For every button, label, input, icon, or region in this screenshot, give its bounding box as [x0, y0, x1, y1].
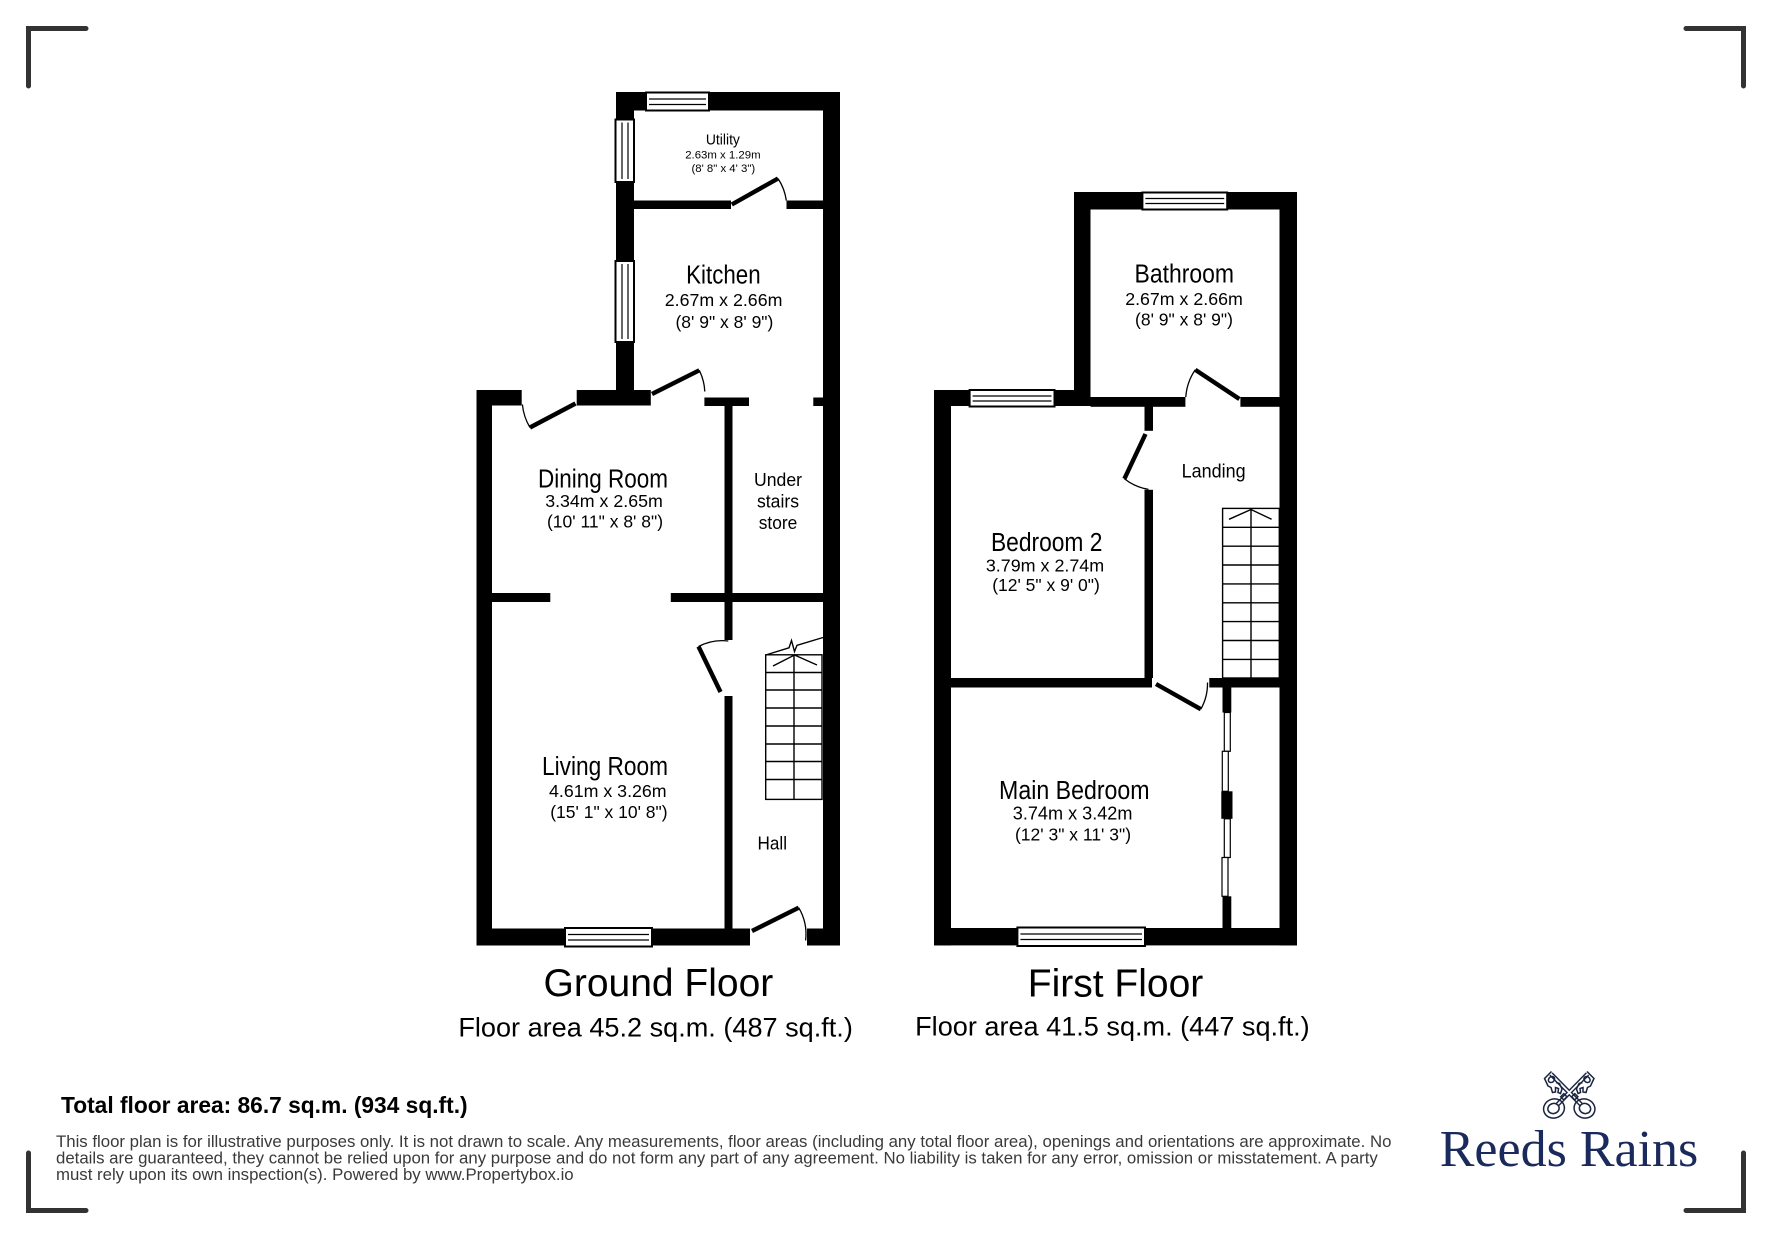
svg-text:Utility: Utility	[706, 132, 740, 149]
svg-text:store: store	[759, 512, 798, 533]
svg-text:(12' 3" x 11' 3"): (12' 3" x 11' 3")	[1015, 825, 1131, 845]
svg-text:stairs: stairs	[757, 491, 799, 512]
svg-text:Floor area 41.5 sq.m. (447 sq.: Floor area 41.5 sq.m. (447 sq.ft.)	[915, 1010, 1310, 1041]
svg-text:(10' 11" x 8' 8"): (10' 11" x 8' 8")	[547, 512, 663, 532]
svg-text:Living Room: Living Room	[542, 753, 668, 781]
svg-text:(8' 8" x 4' 3"): (8' 8" x 4' 3")	[691, 163, 755, 175]
svg-text:First Floor: First Floor	[1028, 962, 1204, 1005]
svg-text:2.63m x 1.29m: 2.63m x 1.29m	[685, 150, 760, 162]
svg-text:Dining Room: Dining Room	[538, 466, 668, 494]
svg-text:2.67m x 2.66m: 2.67m x 2.66m	[1125, 289, 1243, 309]
svg-text:Landing: Landing	[1182, 460, 1246, 482]
svg-text:(12' 5" x 9' 0"): (12' 5" x 9' 0")	[992, 575, 1100, 595]
svg-text:(8' 9" x 8' 9"): (8' 9" x 8' 9")	[1135, 310, 1233, 330]
svg-text:Main Bedroom: Main Bedroom	[999, 777, 1150, 805]
svg-text:(8' 9" x 8' 9"): (8' 9" x 8' 9")	[675, 312, 773, 332]
svg-text:3.34m x 2.65m: 3.34m x 2.65m	[545, 491, 663, 511]
svg-text:Hall: Hall	[758, 833, 788, 854]
svg-text:4.61m x 3.26m: 4.61m x 3.26m	[549, 781, 667, 801]
svg-text:(15' 1" x 10' 8"): (15' 1" x 10' 8")	[550, 802, 667, 822]
svg-text:3.74m x 3.42m: 3.74m x 3.42m	[1013, 804, 1133, 824]
svg-text:Kitchen: Kitchen	[686, 262, 761, 290]
svg-text:must rely upon its own inspect: must rely upon its own inspection(s). Po…	[56, 1165, 574, 1184]
svg-text:Bathroom: Bathroom	[1135, 261, 1235, 289]
svg-text:Total floor area: 86.7 sq.m. (: Total floor area: 86.7 sq.m. (934 sq.ft.…	[61, 1092, 468, 1118]
svg-text:2.67m x 2.66m: 2.67m x 2.66m	[665, 290, 783, 310]
svg-text:Reeds Rains: Reeds Rains	[1440, 1121, 1699, 1178]
svg-text:3.79m x 2.74m: 3.79m x 2.74m	[986, 556, 1104, 576]
svg-text:Ground Floor: Ground Floor	[544, 962, 774, 1005]
svg-text:Under: Under	[754, 469, 802, 490]
svg-text:Bedroom 2: Bedroom 2	[991, 529, 1103, 557]
svg-text:Floor area 45.2 sq.m. (487 sq.: Floor area 45.2 sq.m. (487 sq.ft.)	[458, 1011, 853, 1042]
